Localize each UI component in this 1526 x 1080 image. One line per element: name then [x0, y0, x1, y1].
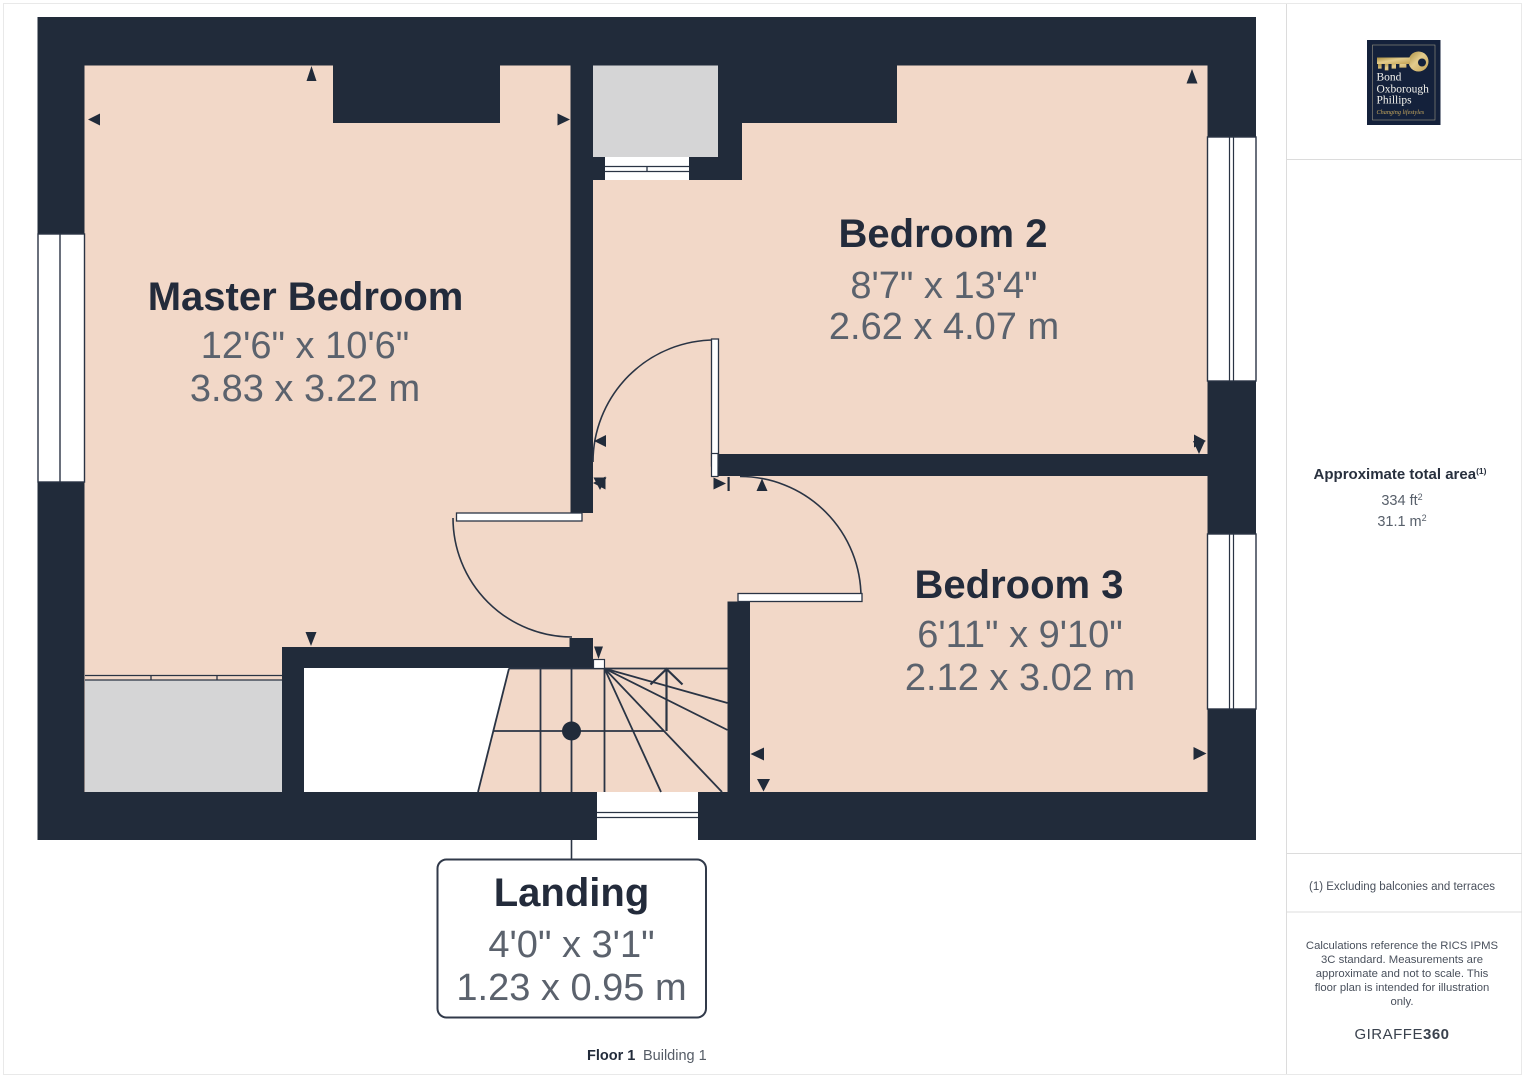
svg-text:6'11" x 9'10": 6'11" x 9'10" — [917, 614, 1123, 656]
svg-text:Floor 1: Floor 1 — [587, 1048, 635, 1064]
svg-text:334 ft2: 334 ft2 — [1381, 492, 1422, 509]
svg-text:only.: only. — [1390, 996, 1413, 1008]
svg-text:Phillips: Phillips — [1377, 95, 1413, 107]
svg-text:(1) Excluding balconies and te: (1) Excluding balconies and terraces — [1309, 881, 1495, 893]
svg-text:GIRAFFE360: GIRAFFE360 — [1354, 1026, 1449, 1043]
svg-text:Bedroom 2: Bedroom 2 — [839, 212, 1048, 256]
svg-text:Master Bedroom: Master Bedroom — [148, 275, 464, 319]
svg-text:Bond: Bond — [1377, 72, 1402, 84]
svg-text:8'7" x 13'4": 8'7" x 13'4" — [850, 265, 1037, 307]
svg-text:Landing: Landing — [494, 871, 650, 915]
svg-text:Building 1: Building 1 — [643, 1048, 707, 1064]
svg-text:31.1 m2: 31.1 m2 — [1377, 513, 1426, 530]
svg-text:2.12 x 3.02 m: 2.12 x 3.02 m — [905, 657, 1135, 699]
svg-text:Bedroom 3: Bedroom 3 — [915, 563, 1124, 607]
svg-text:4'0" x 3'1": 4'0" x 3'1" — [488, 924, 654, 966]
svg-text:3.83 x 3.22 m: 3.83 x 3.22 m — [190, 368, 420, 410]
svg-text:floor plan is intended for ill: floor plan is intended for illustration — [1315, 982, 1490, 994]
svg-text:Calculations reference the RIC: Calculations reference the RICS IPMS — [1306, 940, 1499, 952]
svg-text:Approximate total area(1): Approximate total area(1) — [1314, 466, 1487, 483]
svg-text:1.23 x 0.95 m: 1.23 x 0.95 m — [456, 967, 686, 1009]
svg-text:2.62 x 4.07 m: 2.62 x 4.07 m — [829, 306, 1059, 348]
svg-text:approximate and not to scale.: approximate and not to scale. This — [1316, 968, 1489, 980]
svg-text:Changing lifestyles: Changing lifestyles — [1377, 109, 1425, 116]
svg-text:3C standard. Measurements are: 3C standard. Measurements are — [1321, 954, 1483, 966]
svg-text:12'6" x 10'6": 12'6" x 10'6" — [201, 325, 409, 367]
